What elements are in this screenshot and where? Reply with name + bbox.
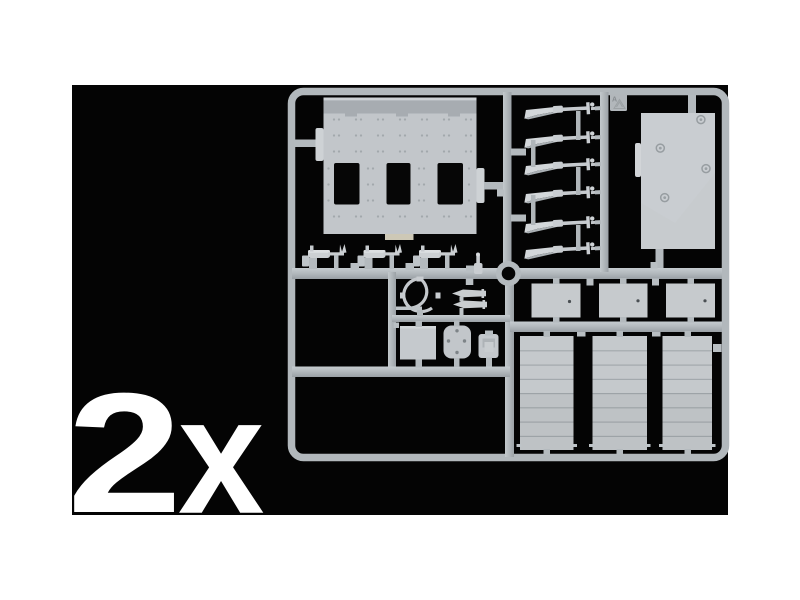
svg-text:A: A [612,97,617,104]
